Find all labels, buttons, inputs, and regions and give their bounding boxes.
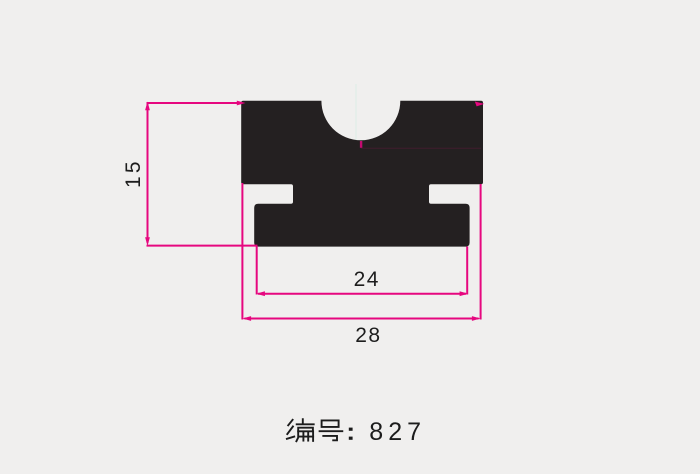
svg-text:24: 24 xyxy=(354,268,380,291)
svg-text:15: 15 xyxy=(122,158,145,188)
svg-text:28: 28 xyxy=(355,324,381,347)
svg-text:827: 827 xyxy=(369,418,426,446)
